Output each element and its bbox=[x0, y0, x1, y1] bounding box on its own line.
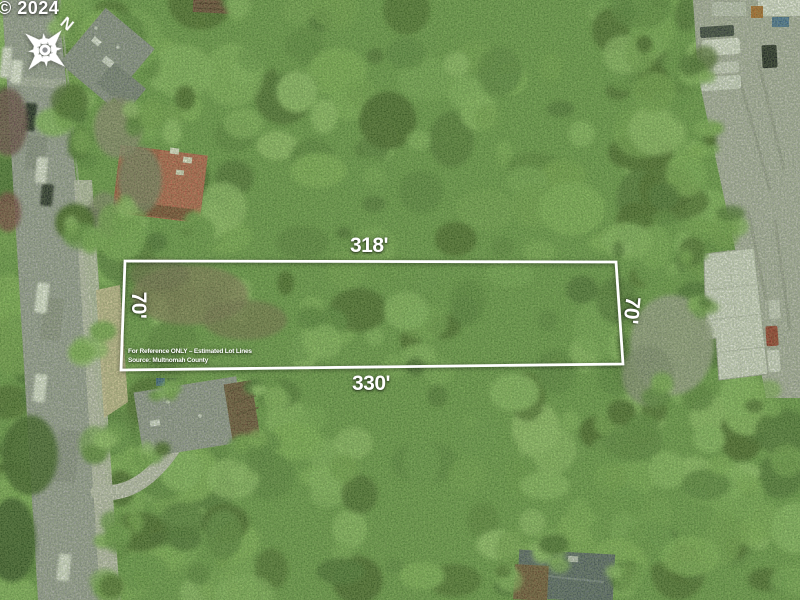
copyright-watermark: © 2024 bbox=[0, 0, 59, 19]
dimension-right: 70' bbox=[618, 295, 645, 324]
compass-north-label: N bbox=[57, 14, 77, 34]
lot-overlay: N bbox=[0, 0, 800, 600]
dimension-top: 318' bbox=[350, 234, 388, 258]
disclaimer-line-1: For Reference ONLY – Estimated Lot Lines bbox=[128, 347, 252, 356]
aerial-lot-photo: N © 2024 318' 330' 70' 70' For Reference… bbox=[0, 0, 800, 600]
disclaimer-line-2: Source: Multnomah County bbox=[128, 356, 252, 365]
disclaimer-note: For Reference ONLY – Estimated Lot Lines… bbox=[128, 347, 252, 365]
dimension-bottom: 330' bbox=[352, 372, 390, 396]
dimension-left: 70' bbox=[126, 292, 150, 319]
